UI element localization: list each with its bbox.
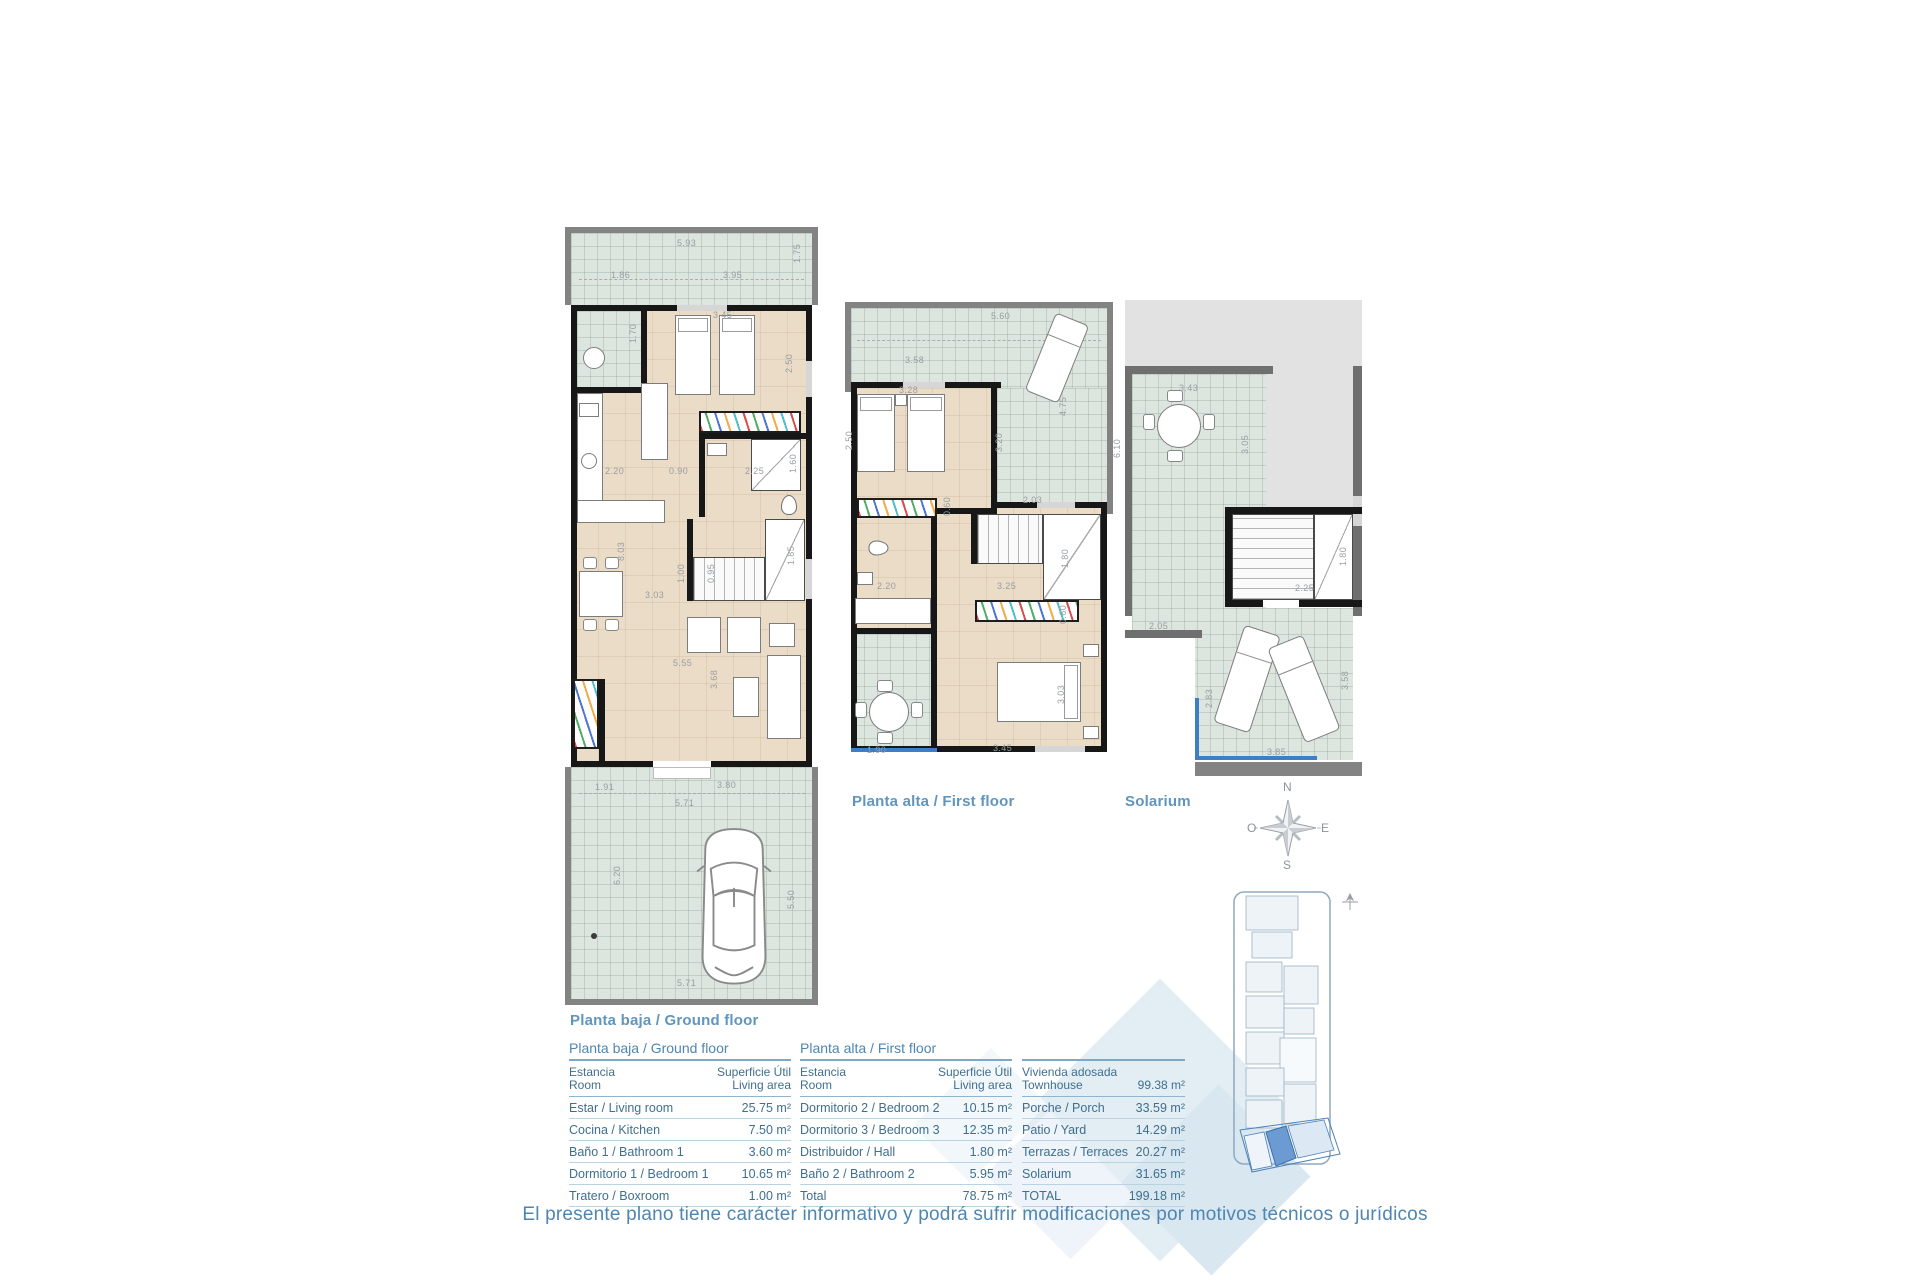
floor-plan-sheet: 5.931.751.863.953.452.501.702.200.902.25… xyxy=(0,0,1920,1280)
chair-icon xyxy=(1167,450,1183,462)
dimension-label: 8.03 xyxy=(617,542,626,561)
wall xyxy=(845,302,1113,308)
room-name: Dormitorio 1 / Bedroom 1 xyxy=(569,1167,709,1181)
room-area: 31.65 m² xyxy=(1136,1167,1185,1181)
dimension-label: 1.80 xyxy=(1339,547,1348,566)
wall xyxy=(565,227,571,305)
dimension-label: 3.68 xyxy=(710,670,719,689)
roof-area xyxy=(1125,300,1362,372)
table-header-room: Estancia Room xyxy=(569,1066,615,1092)
room-name: Porche / Porch xyxy=(1022,1101,1105,1115)
wall xyxy=(931,628,937,752)
wall xyxy=(1125,366,1132,616)
chair-icon xyxy=(877,680,893,692)
chair-icon xyxy=(1143,414,1155,430)
room-name: Cocina / Kitchen xyxy=(569,1123,660,1137)
table-title xyxy=(1022,1040,1185,1057)
washer-icon xyxy=(583,347,605,369)
wall xyxy=(851,628,937,634)
chaise-icon xyxy=(733,677,759,717)
dimension-label: 0.95 xyxy=(707,564,716,583)
wardrobe-icon xyxy=(699,411,801,433)
room-name: Baño 1 / Bathroom 1 xyxy=(569,1145,684,1159)
site-plan xyxy=(1222,886,1372,1178)
dimension-label: 3.80 xyxy=(717,781,736,790)
nightstand-icon xyxy=(1083,644,1099,657)
terrace-tiles xyxy=(997,388,1107,508)
dimension-label: 3.03 xyxy=(1057,685,1066,704)
ground-floor-plan: 5.931.751.863.953.452.501.702.200.902.25… xyxy=(565,227,818,1005)
dimension-label: 5.71 xyxy=(675,799,694,808)
dimension-label: 0.60 xyxy=(1059,605,1068,624)
room-area: 3.60 m² xyxy=(749,1145,791,1159)
dimension-label: 1.90 xyxy=(867,746,886,755)
totals-table: Vivienda adosada Townhouse99.38 m²Porche… xyxy=(1022,1040,1185,1207)
room-area: 10.15 m² xyxy=(963,1101,1012,1115)
dimension-label: 2.20 xyxy=(877,582,896,591)
car-icon xyxy=(693,825,775,989)
toilet-icon xyxy=(781,495,797,515)
wall xyxy=(565,227,818,233)
dimension-label: 5.60 xyxy=(991,312,1010,321)
first-floor-plan: 5.603.583.282.504.753.202.030.602.203.25… xyxy=(845,302,1113,780)
wall xyxy=(599,679,605,761)
wall xyxy=(845,302,851,392)
compass-east-label: E xyxy=(1321,821,1329,835)
table-row: Baño 1 / Bathroom 13.60 m² xyxy=(569,1141,791,1163)
dimension-label: 4.75 xyxy=(1059,397,1068,416)
table-row: Solarium31.65 m² xyxy=(1022,1163,1185,1185)
ground-floor-label: Planta baja / Ground floor xyxy=(570,1012,759,1029)
blue-railing xyxy=(1195,698,1199,760)
wardrobe-icon xyxy=(857,498,937,518)
dimension-label: 2.25 xyxy=(1295,584,1314,593)
window xyxy=(806,559,812,599)
dimension-label: 0.90 xyxy=(669,467,688,476)
roof-area xyxy=(1266,372,1353,508)
chair-icon xyxy=(855,702,867,718)
wall xyxy=(1101,508,1107,752)
table-header: Estancia RoomSuperficie Útil Living area xyxy=(800,1061,1012,1097)
wall xyxy=(1107,302,1113,514)
room-area: 1.00 m² xyxy=(749,1189,791,1203)
dimension-label: 2.50 xyxy=(785,354,794,373)
chair-icon xyxy=(583,619,597,631)
room-area: 7.50 m² xyxy=(749,1123,791,1137)
wall xyxy=(1125,630,1202,638)
room-area: 25.75 m² xyxy=(742,1101,791,1115)
dimension-label: 3.25 xyxy=(997,582,1016,591)
compass-north-label: N xyxy=(1283,780,1292,794)
dimension-label: 1.86 xyxy=(611,271,630,280)
table-title: Planta baja / Ground floor xyxy=(569,1040,791,1057)
table-row: Dormitorio 3 / Bedroom 312.35 m² xyxy=(800,1119,1012,1141)
sink-icon xyxy=(857,572,873,585)
table-header-room: Estancia Room xyxy=(800,1066,846,1092)
stair-opening xyxy=(1263,600,1299,607)
table-row: Baño 2 / Bathroom 25.95 m² xyxy=(800,1163,1012,1185)
bed-icon xyxy=(907,394,945,472)
dimension-label: 3.45 xyxy=(713,311,732,320)
table-row: Dormitorio 1 / Bedroom 110.65 m² xyxy=(569,1163,791,1185)
table-header-area: Superficie Útil Living area xyxy=(717,1066,791,1092)
table-header: Vivienda adosada Townhouse99.38 m² xyxy=(1022,1061,1185,1097)
dimension-label: 6.10 xyxy=(1113,439,1122,458)
table-row: Distribuidor / Hall1.80 m² xyxy=(800,1141,1012,1163)
table-row: Cocina / Kitchen7.50 m² xyxy=(569,1119,791,1141)
table-row: Porche / Porch33.59 m² xyxy=(1022,1097,1185,1119)
dining-table-icon xyxy=(579,571,623,617)
compass-west-label: O xyxy=(1247,821,1256,835)
dimension-label: 3.43 xyxy=(1179,384,1198,393)
wall xyxy=(812,767,818,1005)
room-name: Dormitorio 3 / Bedroom 3 xyxy=(800,1123,940,1137)
dimension-label: 6.20 xyxy=(613,866,622,885)
dimension-label: 5.55 xyxy=(673,659,692,668)
wall xyxy=(565,999,818,1005)
dimension-label: 1.91 xyxy=(595,783,614,792)
dimension-label: 1.60 xyxy=(789,454,798,473)
room-area: 14.29 m² xyxy=(1136,1123,1185,1137)
chair-icon xyxy=(605,619,619,631)
blue-railing xyxy=(851,748,937,752)
bed-icon xyxy=(675,315,711,395)
room-name: Tratero / Boxroom xyxy=(569,1189,669,1203)
room-area: 10.65 m² xyxy=(742,1167,791,1181)
room-name: Patio / Yard xyxy=(1022,1123,1086,1137)
site-plan-drawing xyxy=(1222,886,1372,1178)
compass-south-label: S xyxy=(1283,858,1291,872)
stairs-icon xyxy=(693,557,765,601)
table-row: Estar / Living room25.75 m² xyxy=(569,1097,791,1119)
dashed-guide xyxy=(579,793,805,794)
dimension-label: 0.60 xyxy=(943,497,952,516)
wall xyxy=(812,227,818,305)
room-name: Solarium xyxy=(1022,1167,1071,1181)
table-header: Estancia RoomSuperficie Útil Living area xyxy=(569,1061,791,1097)
disclaimer-text: El presente plano tiene carácter informa… xyxy=(520,1204,1430,1226)
room-area: 12.35 m² xyxy=(963,1123,1012,1137)
table-row: Dormitorio 2 / Bedroom 210.15 m² xyxy=(800,1097,1012,1119)
dimension-label: 5.50 xyxy=(787,890,796,909)
solarium-plan: 6.103.433.052.251.802.052.833.583.85 xyxy=(1125,300,1362,780)
sink-icon xyxy=(579,403,599,417)
room-name: Total xyxy=(800,1189,826,1203)
table-header-area: Superficie Útil Living area xyxy=(938,1066,1012,1092)
kitchen-counter-icon xyxy=(577,500,665,523)
dimension-label: 2.50 xyxy=(845,431,854,450)
chair-icon xyxy=(911,702,923,718)
dimension-label: 1.75 xyxy=(793,244,802,263)
wall xyxy=(931,514,937,628)
entry-step xyxy=(653,767,711,779)
room-name: TOTAL xyxy=(1022,1189,1061,1203)
boxroom-shelves-icon xyxy=(573,679,599,749)
dimension-label: 1.80 xyxy=(1061,549,1070,568)
dimension-label: 2.20 xyxy=(605,467,624,476)
dimension-label: 3.20 xyxy=(995,433,1004,452)
room-area: 1.80 m² xyxy=(970,1145,1012,1159)
wall xyxy=(565,767,571,1005)
table-header-room: Vivienda adosada Townhouse xyxy=(1022,1066,1117,1092)
armchair-icon xyxy=(727,617,761,653)
dimension-label: 5.71 xyxy=(677,979,696,988)
kitchen-island-icon xyxy=(641,383,668,460)
round-table-icon xyxy=(869,692,909,732)
bed-icon xyxy=(857,394,895,472)
room-name: Distribuidor / Hall xyxy=(800,1145,895,1159)
room-name: Baño 2 / Bathroom 2 xyxy=(800,1167,915,1181)
dimension-label: 2.83 xyxy=(1205,689,1214,708)
dimension-label: 3.28 xyxy=(899,386,918,395)
void-area xyxy=(1125,638,1195,780)
dimension-label: 3.58 xyxy=(1341,671,1350,690)
sofa-icon xyxy=(767,655,801,739)
compass-rose: N S E O xyxy=(1248,784,1328,870)
bed-icon xyxy=(719,315,755,395)
wall xyxy=(641,311,647,393)
nightstand-icon xyxy=(895,394,907,406)
first-floor-table: Planta alta / First floorEstancia RoomSu… xyxy=(800,1040,1012,1207)
dimension-label: 2.03 xyxy=(1023,496,1042,505)
room-name: Terrazas / Terraces xyxy=(1022,1145,1128,1159)
stairs-landing-icon xyxy=(1043,514,1101,600)
dimension-label: 3.58 xyxy=(905,356,924,365)
room-area: 33.59 m² xyxy=(1136,1101,1185,1115)
dimension-label: 3.03 xyxy=(645,591,664,600)
window xyxy=(1037,502,1075,508)
blue-railing xyxy=(1195,756,1317,760)
dimension-label: 1.00 xyxy=(677,564,686,583)
shower-icon xyxy=(855,598,931,624)
wall xyxy=(1125,366,1273,374)
sink-icon xyxy=(707,443,727,456)
dimension-label: 3.45 xyxy=(993,744,1012,753)
dimension-label: 1.85 xyxy=(787,546,796,565)
dimension-label: 2.05 xyxy=(1149,622,1168,631)
chair-icon xyxy=(877,732,893,744)
room-area: 199.18 m² xyxy=(1129,1189,1185,1203)
armchair-icon xyxy=(687,617,721,653)
room-area: 20.27 m² xyxy=(1136,1145,1185,1159)
room-name: Dormitorio 2 / Bedroom 2 xyxy=(800,1101,940,1115)
first-floor-label: Planta alta / First floor xyxy=(852,793,1015,810)
dimension-label: 2.25 xyxy=(745,467,764,476)
double-bed-icon xyxy=(997,662,1081,722)
solarium-label: Solarium xyxy=(1125,793,1191,810)
nightstand-icon xyxy=(1083,726,1099,739)
room-area: 5.95 m² xyxy=(970,1167,1012,1181)
chair-icon xyxy=(1203,414,1215,430)
coffee-table-icon xyxy=(769,623,795,647)
stairs-icon xyxy=(977,514,1043,564)
round-table-icon xyxy=(1157,404,1201,448)
chair-icon xyxy=(583,557,597,569)
stove-icon xyxy=(581,453,597,469)
dimension-label: 1.70 xyxy=(629,324,638,343)
window xyxy=(1035,746,1085,752)
table-row: Terrazas / Terraces20.27 m² xyxy=(1022,1141,1185,1163)
wall xyxy=(1195,762,1362,776)
dimension-label: 3.95 xyxy=(723,271,742,280)
ground-floor-table: Planta baja / Ground floorEstancia RoomS… xyxy=(569,1040,791,1207)
wall xyxy=(1353,366,1362,616)
table-title: Planta alta / First floor xyxy=(800,1040,1012,1057)
pole-icon xyxy=(591,933,597,939)
room-area: 78.75 m² xyxy=(963,1189,1012,1203)
dimension-label: 5.93 xyxy=(677,239,696,248)
table-row: Patio / Yard14.29 m² xyxy=(1022,1119,1185,1141)
stairs-landing-icon xyxy=(765,519,805,601)
wall xyxy=(1225,507,1232,607)
window xyxy=(806,361,812,397)
room-name: Estar / Living room xyxy=(569,1101,673,1115)
table-header-area: 99.38 m² xyxy=(1138,1079,1185,1092)
dimension-label: 3.05 xyxy=(1241,435,1250,454)
wall xyxy=(1225,507,1362,514)
wall xyxy=(699,433,705,517)
dimension-label: 3.85 xyxy=(1267,748,1286,757)
